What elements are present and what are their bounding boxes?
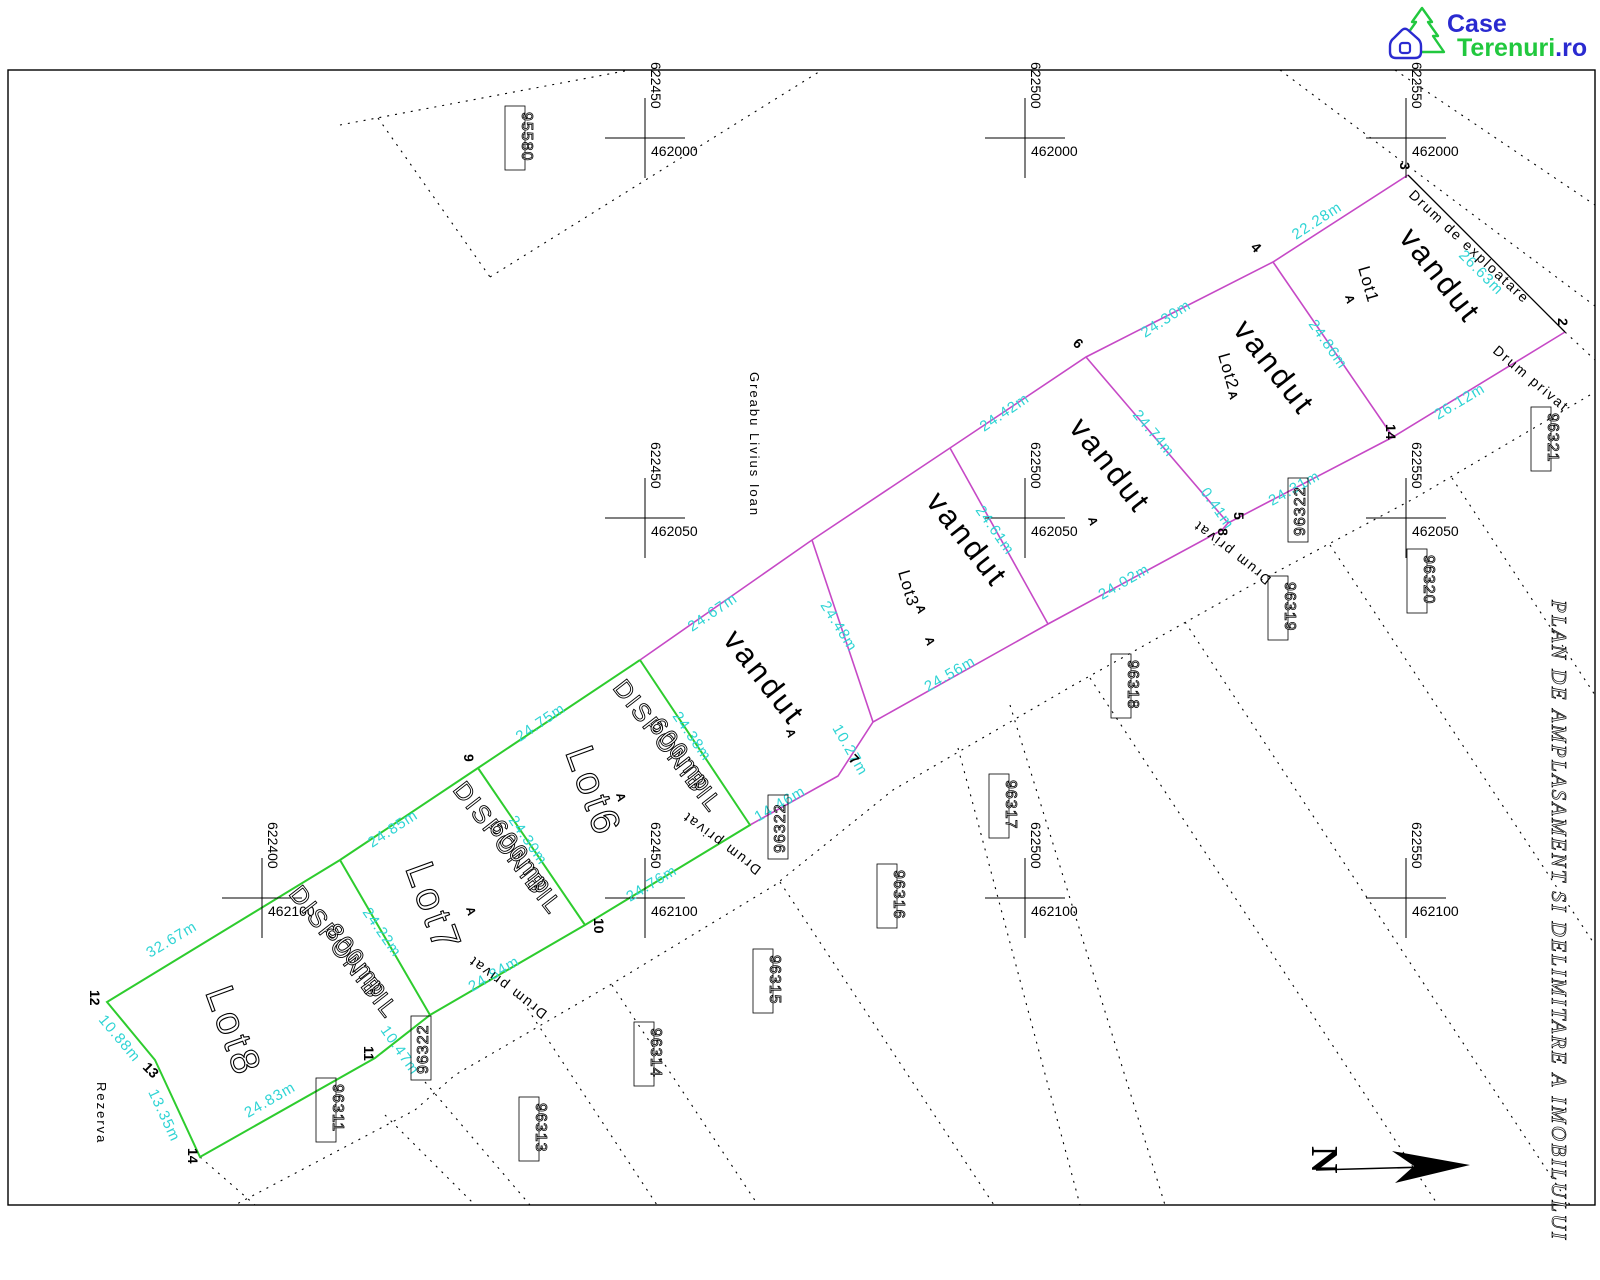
parcel-95580: 95580 xyxy=(505,106,535,170)
point-label: 11 xyxy=(361,1046,377,1061)
parcel-96313: 96313 xyxy=(519,1097,549,1161)
dimension-labels: 26.63m 22.28m 26.12m 24.86m 24.30m 24.74… xyxy=(95,199,1507,1145)
point-label: 6 xyxy=(1070,335,1087,352)
use-marker: A xyxy=(1085,515,1101,527)
cadastral-plan-page: 622450 462000 622500 462000 622550 46200… xyxy=(0,0,1600,1280)
point-label: 2 xyxy=(1555,318,1571,326)
easting-label: 622550 xyxy=(1409,62,1425,109)
parcel-number: 96319 xyxy=(1281,582,1298,632)
dim-label: 26.12m xyxy=(1431,380,1488,423)
dim-label: 24.67m xyxy=(685,590,741,635)
site-logo[interactable]: Case Terenuri.ro xyxy=(1390,8,1587,62)
parcel-96322-road: 96322 xyxy=(768,795,789,859)
dotted-line xyxy=(1010,705,1165,1205)
parcel-number: 96320 xyxy=(1420,555,1437,605)
plan-title-vertical: PLAN DE AMPLASAMENT SI DELIMITARE A IMOB… xyxy=(1547,599,1571,1242)
use-marker: A xyxy=(922,635,938,647)
parcel-96322-road: 96322 xyxy=(411,1016,432,1080)
northing-label: 462100 xyxy=(1031,903,1078,919)
dim-label: 13.35m xyxy=(144,1087,183,1145)
dim-label: 24.86m xyxy=(1305,317,1351,373)
parcel-96319: 96319 xyxy=(1268,576,1298,640)
parcel-number: 96311 xyxy=(329,1084,346,1132)
grid-cross: 622550 462050 xyxy=(1366,442,1459,558)
parcel-number: 96316 xyxy=(890,870,907,920)
parcel-96320: 96320 xyxy=(1407,549,1437,613)
parcel-96318: 96318 xyxy=(1111,654,1141,718)
neighbor-owner-label: Greabu Livius Ioan xyxy=(747,372,762,517)
northing-label: 462050 xyxy=(1412,523,1459,539)
grid-cross: 622450 462000 xyxy=(605,62,698,178)
logo-text-terenuri: Terenuri xyxy=(1457,34,1555,62)
lot5-status: vandut xyxy=(716,623,812,732)
parcel-96311: 96311 xyxy=(316,1078,346,1142)
logo-text-ro: .ro xyxy=(1555,34,1587,62)
parcel-96314: 96314 xyxy=(634,1022,664,1086)
northing-label: 462100 xyxy=(651,903,698,919)
easting-label: 622450 xyxy=(648,822,664,869)
northing-label: 462050 xyxy=(651,523,698,539)
parcel-96315: 96315 xyxy=(753,949,783,1013)
lot1-name: Lot1 xyxy=(1354,264,1382,305)
point-label: 5 xyxy=(1231,512,1247,520)
dotted-line xyxy=(612,985,758,1205)
parcel-number: 96321 xyxy=(1544,413,1561,463)
dim-label: 24.42m xyxy=(977,390,1033,435)
parcel-96317: 96317 xyxy=(989,774,1019,838)
parcel-number: 96322 xyxy=(1292,487,1309,537)
dim-label: 32.67m xyxy=(143,918,200,961)
parcel-number: 95580 xyxy=(518,112,535,162)
easting-label: 622550 xyxy=(1409,822,1425,869)
parcel-96322-road: 96322 xyxy=(1288,478,1309,542)
grid-cross: 622400 462100 xyxy=(222,822,315,938)
lot3-name: Lot3 xyxy=(894,568,922,609)
dotted-line xyxy=(780,882,994,1205)
point-label: 13 xyxy=(140,1059,162,1081)
reserve-label: Rezerva xyxy=(94,1082,109,1144)
dim-label: 24.48m xyxy=(817,598,861,655)
dim-label: 24.02m xyxy=(1096,561,1153,604)
grid-cross: 622550 462000 xyxy=(1366,62,1459,178)
branch-road-south-west xyxy=(385,1082,530,1205)
northing-label: 462050 xyxy=(1031,523,1078,539)
svg-text:Terenuri.ro: Terenuri.ro xyxy=(1457,34,1587,62)
dim-label: 24.74m xyxy=(1129,407,1178,461)
grid-cross: 622550 462100 xyxy=(1366,822,1459,938)
easting-label: 622450 xyxy=(648,62,664,109)
point-label: 12 xyxy=(87,990,103,1006)
easting-label: 622500 xyxy=(1028,62,1044,109)
dotted-line xyxy=(385,1115,475,1205)
dotted-line xyxy=(1452,478,1595,695)
point-label: 10 xyxy=(591,918,607,934)
easting-label: 622450 xyxy=(648,442,664,489)
grid-cross: 622500 462100 xyxy=(985,822,1078,938)
northing-label: 462000 xyxy=(651,143,698,159)
easting-label: 622550 xyxy=(1409,442,1425,489)
dotted-line xyxy=(378,118,490,277)
neighbor-parcel-95580-outline xyxy=(340,70,822,277)
neighbor-parcel-dividers xyxy=(200,478,1595,1205)
point-label: 3 xyxy=(1397,162,1413,170)
drum-privat-far-edge xyxy=(235,395,1590,1205)
plan-canvas: 622450 462000 622500 462000 622550 46200… xyxy=(0,0,1600,1280)
road-continuation xyxy=(1565,332,1595,360)
dim-label: 24.83m xyxy=(242,1079,299,1122)
parcel-number: 96315 xyxy=(766,955,783,1005)
parcel-number: 96322 xyxy=(415,1025,432,1075)
dotted-line xyxy=(1185,622,1570,1205)
point-label: 14 xyxy=(1383,424,1399,440)
lot6-name: Lot6 xyxy=(557,740,630,843)
use-marker: A xyxy=(1225,389,1241,401)
north-arrow: N xyxy=(1303,1146,1470,1183)
use-marker: A xyxy=(463,905,479,917)
parcel-96316: 96316 xyxy=(877,864,907,928)
dim-label: 24.75m xyxy=(513,700,569,745)
use-marker: A xyxy=(1342,293,1358,305)
point-label: 4 xyxy=(1248,239,1265,256)
parcel-number: 96313 xyxy=(532,1103,549,1153)
dim-label: 24.56m xyxy=(922,653,979,696)
northing-label: 462000 xyxy=(1412,143,1459,159)
dim-label: 24.30m xyxy=(1138,297,1194,342)
dotted-line xyxy=(340,70,630,125)
easting-label: 622400 xyxy=(265,822,281,869)
easting-label: 622500 xyxy=(1028,822,1044,869)
dotted-line xyxy=(200,1157,255,1205)
parcel-number: 96318 xyxy=(1124,660,1141,710)
dotted-line xyxy=(425,1082,530,1205)
grid-cross: 622500 462000 xyxy=(985,62,1078,178)
point-label: 14 xyxy=(185,1148,201,1164)
northing-label: 462000 xyxy=(1031,143,1078,159)
dim-label: 24.85m xyxy=(365,807,421,852)
grid-cross: 622450 462050 xyxy=(605,442,698,558)
neighbor-parcel-numbers: 95580 96311 96313 96314 96315 96316 9631… xyxy=(316,106,1561,1161)
dim-label: 10.27m xyxy=(829,722,872,779)
parcel-96321: 96321 xyxy=(1531,407,1561,471)
easting-label: 622500 xyxy=(1028,442,1044,489)
road-privat-label: Drum privat xyxy=(679,809,764,879)
northing-label: 462100 xyxy=(1412,903,1459,919)
boundary-point-numbers: 2 3 4 5 6 7 8 9 10 11 12 13 14 14 xyxy=(87,162,1571,1164)
lot2-name: Lot2 xyxy=(1214,351,1242,392)
point-label: 9 xyxy=(461,754,477,762)
lot7-name: Lot7 xyxy=(397,856,470,959)
dotted-line xyxy=(1090,678,1438,1205)
parcel-number: 96317 xyxy=(1002,780,1019,830)
parcel-number: 96322 xyxy=(772,804,789,854)
parcel-number: 96314 xyxy=(647,1028,664,1078)
lot8-name: Lot8 xyxy=(197,980,270,1083)
